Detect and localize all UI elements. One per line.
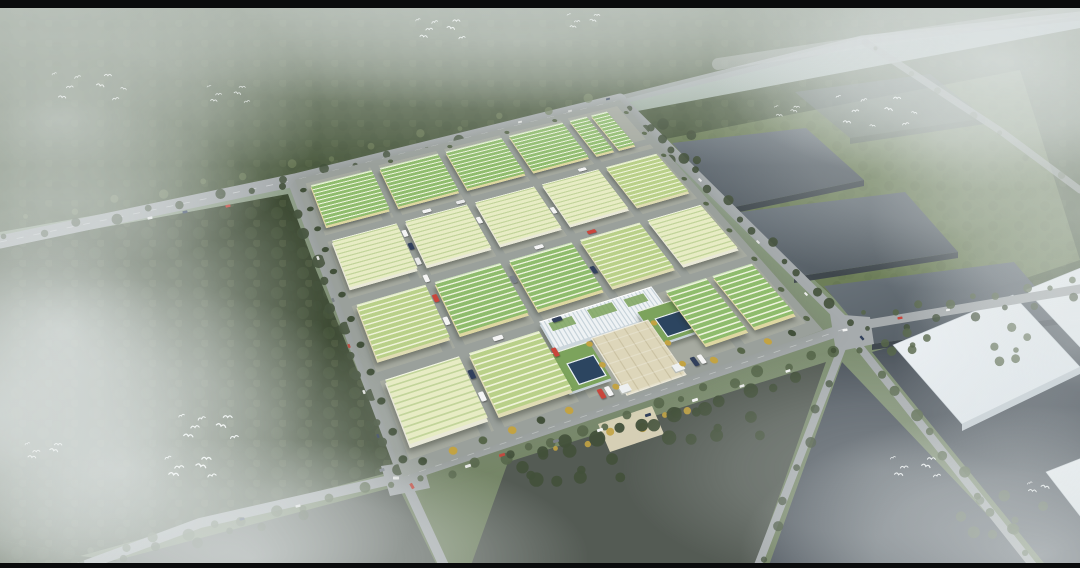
tree — [856, 347, 862, 353]
tree — [298, 228, 309, 239]
tree — [831, 348, 837, 354]
vehicle — [465, 464, 472, 469]
tree — [959, 466, 970, 477]
tree — [120, 555, 127, 562]
tree — [1069, 277, 1076, 284]
tree — [861, 310, 866, 315]
tree — [990, 343, 998, 351]
tree — [606, 453, 618, 465]
tree — [684, 407, 691, 414]
tree — [911, 409, 923, 421]
tree — [999, 490, 1010, 501]
tree — [769, 384, 777, 392]
tree — [320, 277, 328, 285]
tree — [347, 352, 355, 360]
tree — [793, 464, 800, 471]
tree — [615, 473, 625, 483]
tree — [1023, 333, 1031, 341]
tree — [329, 156, 334, 161]
tree — [988, 530, 997, 539]
aerial-rendering-stage — [0, 0, 1080, 568]
tree — [1007, 323, 1016, 332]
tree — [458, 126, 463, 131]
tree — [908, 345, 917, 354]
tree — [893, 309, 899, 315]
vehicle-body — [739, 384, 745, 388]
tree — [699, 383, 707, 391]
tree — [545, 107, 553, 115]
tree — [23, 214, 28, 219]
tree — [1031, 303, 1038, 310]
tree — [378, 438, 387, 447]
tree — [211, 520, 219, 528]
tree — [865, 326, 870, 331]
tree — [938, 451, 948, 461]
tree — [971, 312, 980, 321]
tree — [887, 346, 897, 356]
tree — [1047, 285, 1052, 290]
vehicle-body — [465, 464, 472, 469]
tree — [538, 449, 548, 459]
tree — [325, 494, 334, 503]
tree — [995, 357, 1005, 367]
tree — [87, 547, 93, 553]
tree — [360, 482, 371, 493]
tree — [997, 130, 1002, 135]
vehicle — [739, 384, 745, 388]
tree — [768, 237, 778, 247]
tree — [271, 505, 282, 516]
office-green-roof-patch — [623, 293, 648, 307]
tree — [970, 293, 976, 299]
tree — [737, 217, 743, 223]
tree — [584, 94, 593, 103]
tree — [745, 411, 757, 423]
tree — [782, 259, 788, 265]
tree — [909, 71, 914, 76]
tree — [730, 378, 740, 388]
tree — [926, 428, 934, 436]
tree — [1069, 293, 1078, 302]
tree — [976, 496, 985, 505]
tree — [806, 351, 816, 361]
tree — [148, 532, 158, 542]
tree — [417, 475, 423, 481]
tree — [324, 303, 335, 314]
tree — [226, 528, 233, 535]
tree — [448, 470, 456, 478]
tree — [279, 183, 286, 190]
tree — [790, 372, 801, 383]
vehicle-body — [804, 292, 808, 296]
tree — [667, 147, 674, 154]
tree — [192, 537, 203, 548]
tree — [563, 444, 577, 458]
tree — [623, 411, 632, 420]
tree — [748, 227, 756, 235]
tree — [145, 205, 152, 212]
tree — [200, 178, 206, 184]
tree — [934, 87, 941, 94]
tree — [1009, 524, 1020, 535]
office-green-roof-patch — [587, 302, 617, 318]
tree — [279, 176, 287, 184]
tree — [873, 46, 877, 50]
tree — [654, 398, 665, 409]
tree — [288, 159, 297, 168]
tree — [932, 314, 940, 322]
tree — [373, 419, 380, 426]
vehicle-body — [393, 477, 399, 480]
letterbox-bottom — [0, 563, 1080, 568]
tree — [778, 497, 786, 505]
tree — [589, 430, 605, 446]
tree — [1002, 305, 1008, 311]
tree — [678, 396, 684, 402]
tree — [671, 407, 681, 417]
tree — [773, 521, 783, 531]
tree — [970, 112, 978, 120]
tree — [122, 544, 130, 552]
tree — [614, 423, 624, 433]
tree — [41, 230, 48, 237]
vehicle — [804, 292, 808, 296]
letterbox-top — [0, 0, 1080, 8]
tree — [878, 371, 886, 379]
tree — [496, 113, 502, 119]
tree — [992, 293, 999, 300]
tree — [1, 234, 7, 240]
tree — [811, 405, 820, 414]
tree — [71, 218, 80, 227]
tree — [761, 557, 767, 563]
tree — [551, 476, 562, 487]
tree — [792, 269, 799, 276]
tree — [636, 419, 649, 432]
tree — [72, 209, 78, 215]
tree — [686, 434, 697, 445]
tree — [526, 471, 535, 480]
tree — [159, 189, 168, 198]
tree — [1013, 347, 1019, 353]
tree — [1058, 171, 1066, 179]
tree — [713, 395, 725, 407]
tree — [293, 210, 302, 219]
tree — [662, 430, 676, 444]
tree — [679, 153, 690, 164]
tree — [805, 437, 816, 448]
tree — [956, 511, 966, 521]
tree — [710, 429, 723, 442]
tree — [110, 195, 118, 203]
tree — [744, 383, 758, 397]
tree — [968, 526, 980, 538]
tree — [606, 428, 614, 436]
tree — [923, 334, 931, 342]
tree — [881, 339, 889, 347]
tree — [755, 431, 765, 441]
tree — [698, 402, 712, 416]
tree — [1022, 550, 1028, 556]
tree — [986, 508, 995, 517]
tree — [574, 471, 587, 484]
tree — [215, 189, 225, 199]
tree — [914, 300, 922, 308]
vehicle — [692, 398, 699, 403]
tree — [692, 166, 699, 173]
tree — [388, 482, 394, 488]
tree — [257, 523, 265, 531]
tree — [648, 419, 660, 431]
tree — [657, 118, 668, 129]
tree — [890, 386, 900, 396]
tree — [351, 370, 361, 380]
tree — [416, 129, 424, 137]
vehicle-body — [692, 398, 699, 403]
tree — [299, 510, 309, 520]
tree — [151, 542, 160, 551]
tree — [946, 300, 955, 309]
tree — [703, 185, 711, 193]
tree — [516, 461, 528, 473]
tree — [903, 328, 912, 337]
tree — [1022, 155, 1028, 161]
tree — [249, 188, 255, 194]
tree — [1038, 501, 1048, 511]
tree — [1023, 284, 1032, 293]
tree — [751, 365, 763, 377]
tree — [368, 143, 375, 150]
tree — [723, 195, 733, 205]
tree — [175, 201, 183, 209]
tree — [658, 135, 667, 144]
tree — [553, 446, 558, 451]
tree — [686, 130, 696, 140]
tree — [183, 529, 195, 541]
tree — [1012, 517, 1019, 524]
tree — [506, 450, 514, 458]
tree — [577, 425, 588, 436]
vehicle — [393, 477, 399, 480]
tree — [112, 214, 123, 225]
tree — [813, 288, 822, 297]
tree — [1011, 354, 1020, 363]
tree — [693, 156, 701, 164]
tree — [239, 173, 246, 180]
tree — [824, 298, 835, 309]
tree — [525, 443, 533, 451]
tree — [847, 319, 854, 326]
tree — [826, 380, 833, 387]
